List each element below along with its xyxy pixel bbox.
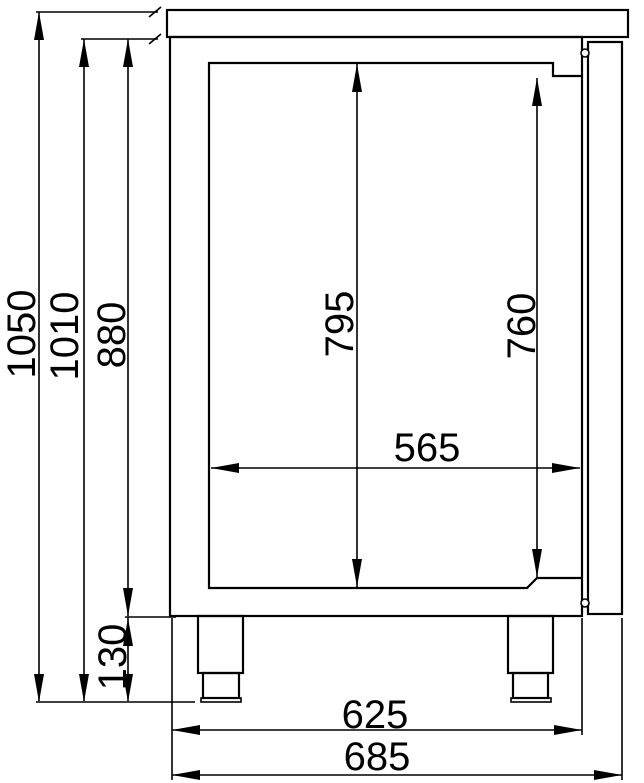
dim-label-880: 880 xyxy=(90,302,134,369)
arrow-up-760 xyxy=(532,78,542,106)
leg-left xyxy=(198,616,243,702)
worktop xyxy=(167,10,628,37)
dim-label-795: 795 xyxy=(318,291,362,358)
arrow-left-685 xyxy=(172,770,200,780)
arrow-up-1050 xyxy=(34,12,44,40)
dimension-880: 880 xyxy=(90,39,134,616)
dimension-1010: 1010 xyxy=(43,39,89,702)
dim-label-760: 760 xyxy=(500,293,544,360)
arrow-down-795 xyxy=(352,559,362,587)
door-hinge-top xyxy=(581,49,589,57)
arrow-up-795 xyxy=(352,64,362,92)
dim-label-1010: 1010 xyxy=(43,292,87,381)
dimension-1050: 1050 xyxy=(0,12,44,702)
drawing-svg: 1050 1010 880 130 795 760 xyxy=(0,0,644,783)
technical-drawing-canvas: 1050 1010 880 130 795 760 xyxy=(0,0,644,783)
dim-label-565: 565 xyxy=(394,426,461,470)
arrow-up-880 xyxy=(123,39,133,67)
arrow-left-565 xyxy=(211,463,239,473)
dim-label-130: 130 xyxy=(91,624,135,691)
dim-label-1050: 1050 xyxy=(0,290,44,379)
arrow-up-1010 xyxy=(79,39,89,67)
leg-right-base xyxy=(511,698,551,702)
dimension-130: 130 xyxy=(91,617,135,702)
arrow-down-1050 xyxy=(34,674,44,702)
leg-right-upper xyxy=(508,616,553,673)
leg-right xyxy=(508,616,553,702)
leg-left-base xyxy=(201,698,241,702)
arrow-down-880 xyxy=(123,588,133,616)
arrow-down-760 xyxy=(532,549,542,577)
dim-label-625: 625 xyxy=(342,693,409,737)
arrow-left-625 xyxy=(172,725,200,735)
dimension-685: 685 xyxy=(172,735,622,780)
leg-left-foot xyxy=(203,673,239,698)
leg-right-foot xyxy=(513,673,548,698)
arrow-right-565 xyxy=(552,463,580,473)
dimension-625: 625 xyxy=(172,693,582,737)
dimension-565: 565 xyxy=(211,426,580,473)
dimension-760: 760 xyxy=(500,78,544,577)
arrow-down-1010 xyxy=(79,674,89,702)
dimension-795: 795 xyxy=(318,64,362,587)
dim-label-685: 685 xyxy=(344,735,411,779)
door-panel xyxy=(588,42,622,614)
door-hinge-bottom xyxy=(581,599,589,607)
leg-left-upper xyxy=(198,616,243,673)
arrow-right-685 xyxy=(594,770,622,780)
cabinet-structure xyxy=(167,10,628,702)
arrow-right-625 xyxy=(554,725,582,735)
